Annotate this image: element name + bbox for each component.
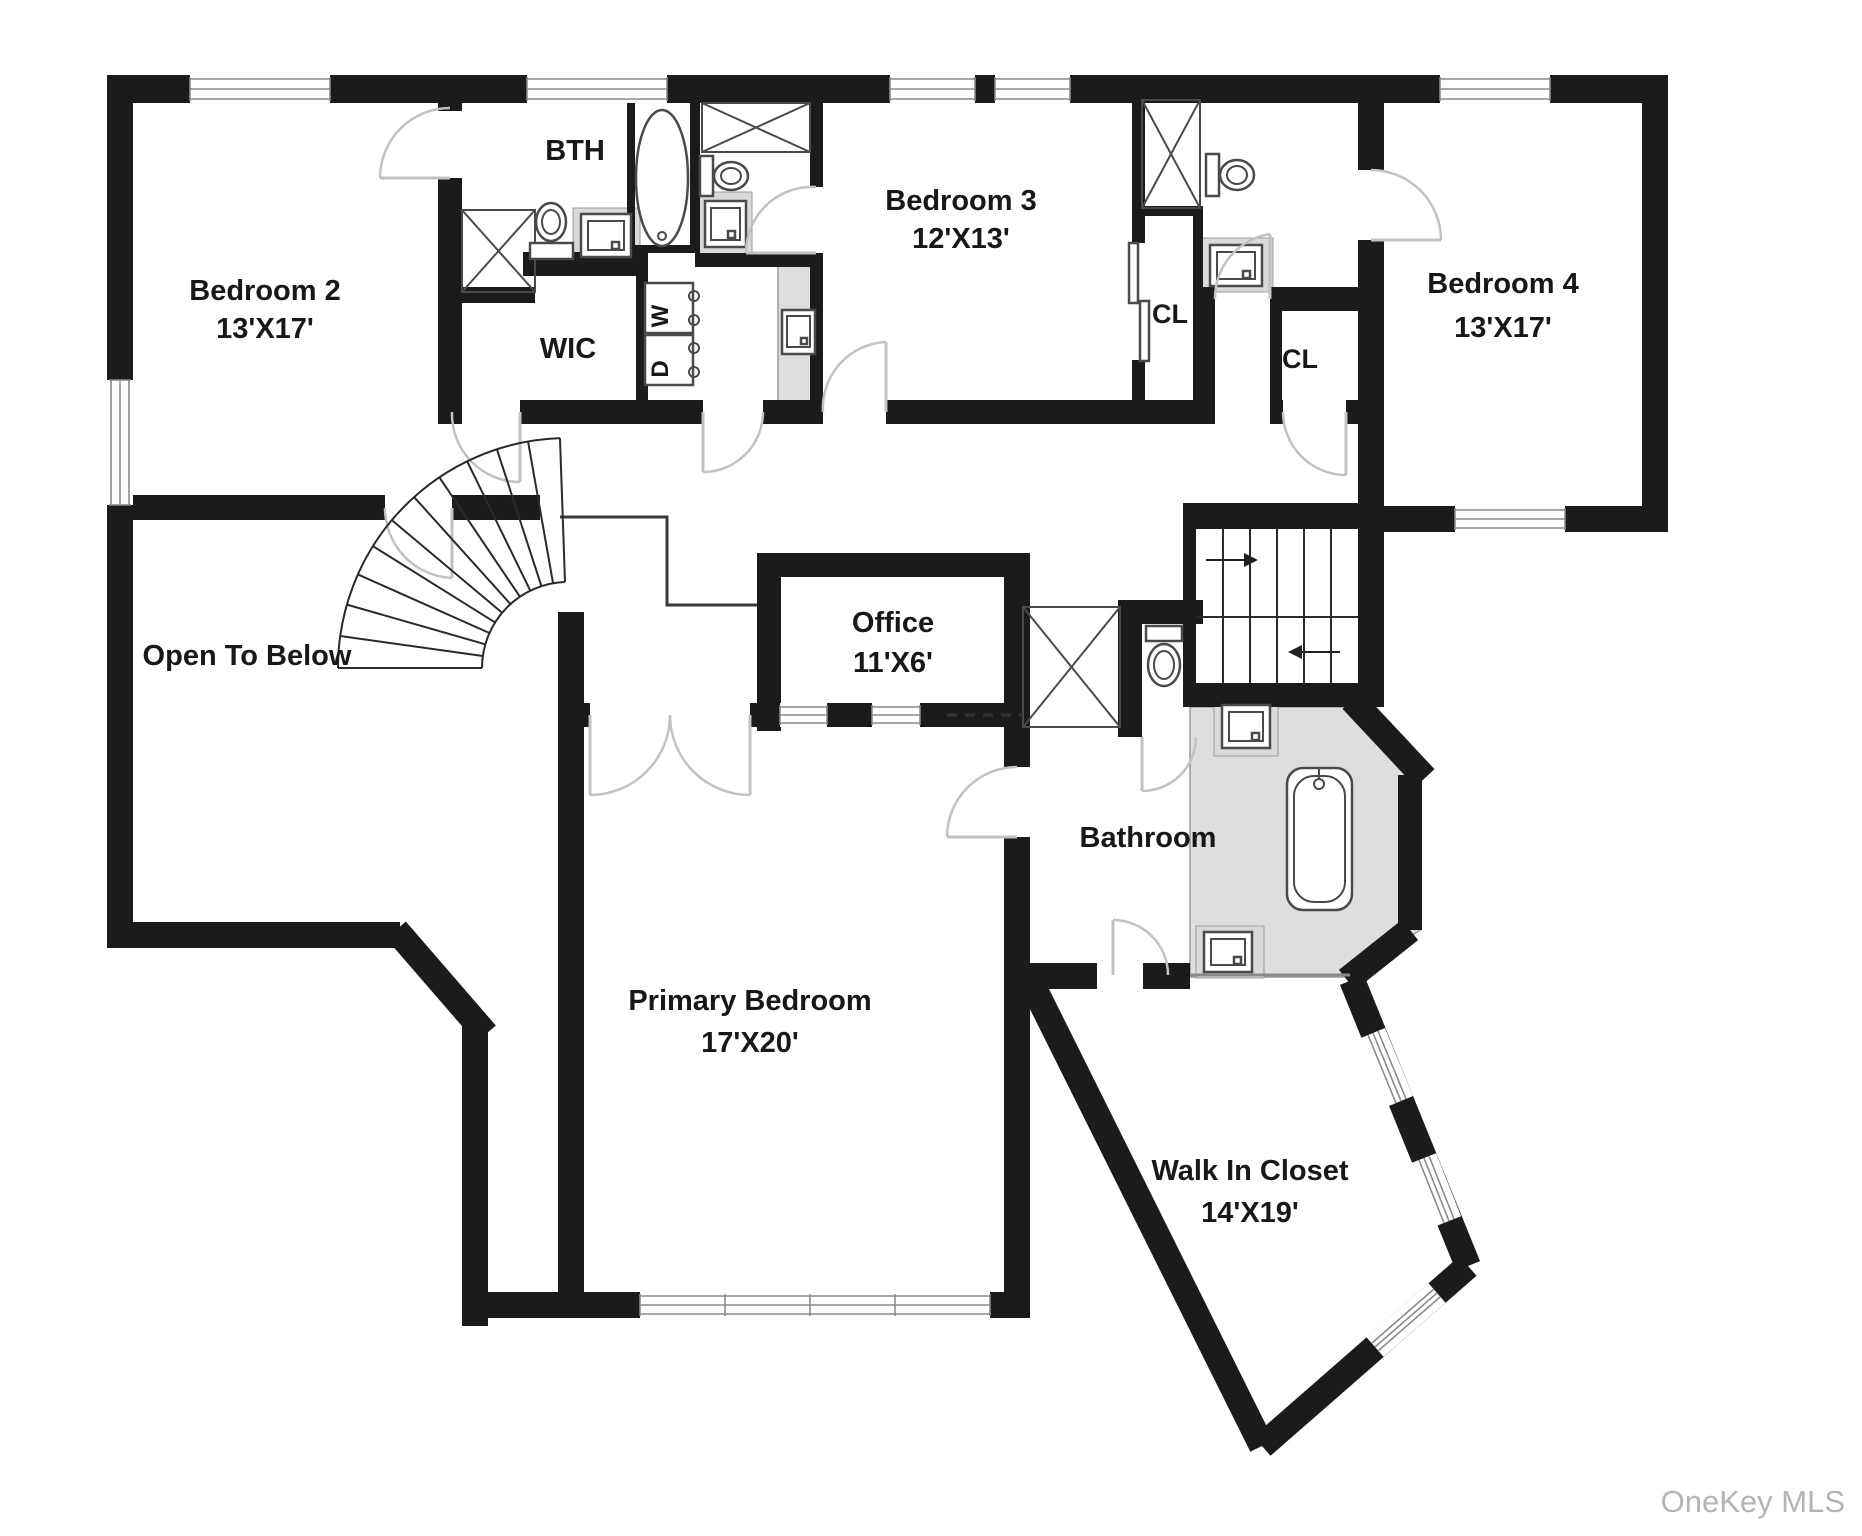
room-label-bedroom-2: Bedroom 2: [189, 275, 340, 307]
wall: [1358, 503, 1384, 707]
wall: [1004, 837, 1030, 1318]
room-dims-bedroom-2: 13'X17': [216, 313, 314, 345]
room-label-cl-2: CL: [1282, 344, 1318, 374]
wall: [1270, 400, 1283, 424]
room-label-primary-bedroom: Primary Bedroom: [628, 985, 871, 1017]
room-dims-bedroom-4: 13'X17': [1454, 312, 1552, 344]
wall: [107, 75, 1668, 103]
wall: [520, 400, 703, 424]
wall: [1642, 75, 1668, 532]
bathtub-icon: [1287, 768, 1352, 910]
wall: [1190, 503, 1358, 529]
wall: [810, 103, 823, 187]
dryer-icon: D: [645, 335, 699, 385]
wall: [1203, 287, 1215, 311]
wall: [1190, 683, 1352, 707]
wall: [1203, 400, 1215, 424]
room-label-walk-in-closet: Walk In Closet: [1151, 1155, 1348, 1187]
room-label-bathroom: Bathroom: [1080, 822, 1217, 854]
sink-icon: [782, 310, 815, 354]
wall: [1004, 553, 1030, 767]
room-label-wic: WIC: [540, 333, 596, 365]
wall: [1193, 210, 1203, 415]
wall: [558, 612, 584, 1318]
washer-icon: W: [645, 283, 699, 333]
wall: [1132, 360, 1145, 424]
sink-icon: [581, 214, 631, 257]
toilet-icon: [1146, 626, 1182, 686]
wall: [107, 922, 400, 948]
sink-icon: [1222, 705, 1270, 748]
wall: [757, 553, 1030, 577]
watermark: OneKey MLS: [1661, 1484, 1845, 1519]
wall: [1398, 775, 1422, 930]
dryer-label: D: [647, 360, 674, 377]
room-label-bedroom-3: Bedroom 3: [885, 185, 1036, 217]
wall: [107, 495, 385, 520]
wall: [1203, 311, 1215, 400]
wall: [1118, 600, 1142, 737]
wall: [1132, 103, 1145, 243]
wall: [886, 400, 1203, 424]
wall: [1358, 103, 1384, 170]
wall: [763, 400, 823, 424]
room-dims-office: 11'X6': [853, 647, 933, 679]
wall: [690, 103, 700, 253]
wall: [1346, 400, 1358, 424]
room-label-office: Office: [852, 607, 934, 639]
floor-plan: W D: [0, 0, 1862, 1536]
room-dims-walk-in-closet: 14'X19': [1201, 1197, 1299, 1229]
wall: [1270, 311, 1282, 400]
sink-icon: [1204, 932, 1252, 972]
sink-icon: [705, 201, 746, 247]
room-label-cl-1: CL: [1152, 299, 1188, 329]
room-label-bedroom-4: Bedroom 4: [1427, 268, 1578, 300]
bathtub-icon: [636, 110, 688, 246]
room-dims-bedroom-3: 12'X13': [912, 223, 1010, 255]
wall: [1358, 240, 1384, 532]
floor-plan-canvas: W D: [0, 0, 1862, 1536]
wall: [1270, 287, 1358, 311]
wall: [462, 1020, 488, 1326]
room-label-bth: BTH: [545, 135, 605, 167]
washer-label: W: [647, 304, 674, 327]
room-label-open-to-below: Open To Below: [143, 640, 352, 672]
room-dims-primary-bedroom: 17'X20': [701, 1027, 799, 1059]
wall: [695, 253, 823, 267]
